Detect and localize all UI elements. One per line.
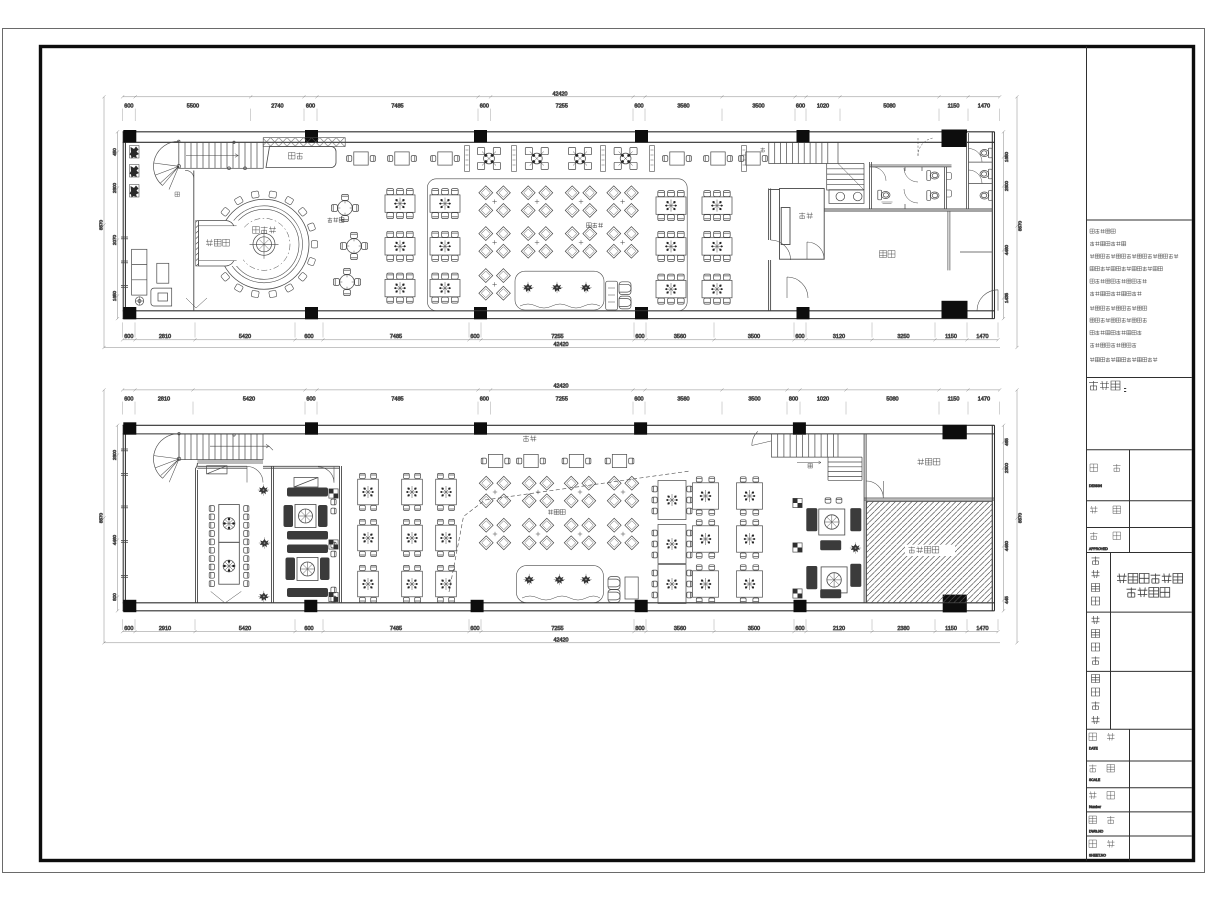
svg-text:DWG.NO: DWG.NO: [1089, 830, 1104, 834]
svg-text:3250: 3250: [897, 334, 909, 340]
svg-text:600: 600: [635, 334, 644, 340]
svg-text:2300: 2300: [1004, 462, 1009, 473]
svg-text:1150: 1150: [945, 334, 957, 340]
svg-text:3500: 3500: [748, 626, 760, 632]
svg-text:3500: 3500: [748, 334, 760, 340]
svg-text:1150: 1150: [948, 103, 960, 109]
svg-text:3560: 3560: [674, 334, 686, 340]
svg-text:5420: 5420: [239, 626, 251, 632]
svg-text:7485: 7485: [391, 397, 403, 403]
svg-text:1150: 1150: [945, 626, 957, 632]
svg-text:600: 600: [796, 103, 805, 109]
svg-text:600: 600: [480, 103, 489, 109]
svg-text:600: 600: [304, 626, 313, 632]
svg-text:2740: 2740: [271, 103, 283, 109]
svg-text:600: 600: [634, 103, 643, 109]
svg-text:600: 600: [634, 397, 643, 403]
svg-text:600: 600: [470, 626, 479, 632]
svg-text:2800: 2800: [112, 182, 117, 193]
svg-text:1650: 1650: [112, 290, 117, 301]
svg-text:7255: 7255: [551, 334, 563, 340]
svg-text:2810: 2810: [158, 397, 170, 403]
svg-text:450: 450: [112, 148, 117, 156]
svg-text:DATE: DATE: [1089, 747, 1099, 751]
svg-text:600: 600: [124, 626, 133, 632]
svg-text:5420: 5420: [243, 397, 255, 403]
svg-text:1470: 1470: [978, 397, 990, 403]
svg-text:600: 600: [304, 334, 313, 340]
svg-text:APPROVED: APPROVED: [1089, 547, 1108, 551]
svg-text:42420: 42420: [553, 91, 568, 97]
svg-text:5500: 5500: [187, 103, 199, 109]
svg-text:DESIGN: DESIGN: [1089, 484, 1103, 488]
svg-text:4460: 4460: [112, 534, 117, 545]
svg-text:600: 600: [795, 626, 804, 632]
svg-text:1650: 1650: [1004, 151, 1009, 162]
svg-text:445: 445: [1004, 596, 1009, 604]
svg-text:5080: 5080: [883, 103, 895, 109]
svg-text:2810: 2810: [159, 334, 171, 340]
svg-text:800: 800: [789, 397, 798, 403]
svg-text:7485: 7485: [390, 334, 402, 340]
svg-text:5080: 5080: [886, 397, 898, 403]
svg-text:600: 600: [470, 334, 479, 340]
svg-text:800: 800: [635, 626, 644, 632]
svg-text:2800: 2800: [1004, 180, 1009, 191]
svg-text:1470: 1470: [976, 334, 988, 340]
svg-text:8570: 8570: [99, 512, 104, 523]
svg-text:Number: Number: [1089, 805, 1102, 809]
svg-text:600: 600: [306, 397, 315, 403]
svg-text:8570: 8570: [99, 219, 104, 230]
svg-text:5420: 5420: [239, 334, 251, 340]
svg-text:2380: 2380: [897, 626, 909, 632]
svg-text:4460: 4460: [1004, 540, 1009, 551]
svg-text:3560: 3560: [677, 397, 689, 403]
svg-text:1470: 1470: [978, 103, 990, 109]
svg-text:1020: 1020: [817, 103, 829, 109]
svg-text:2800: 2800: [112, 449, 117, 460]
svg-text:2910: 2910: [159, 626, 171, 632]
svg-text:2120: 2120: [833, 626, 845, 632]
svg-text:8570: 8570: [1018, 512, 1023, 523]
svg-text:7255: 7255: [556, 397, 568, 403]
svg-text:7485: 7485: [390, 626, 402, 632]
svg-text:3500: 3500: [752, 103, 764, 109]
svg-text:600: 600: [124, 103, 133, 109]
svg-text:2070: 2070: [112, 234, 117, 245]
svg-text:1020: 1020: [817, 397, 829, 403]
svg-text:7255: 7255: [556, 103, 568, 109]
svg-text:SHEET.NO: SHEET.NO: [1089, 854, 1106, 858]
svg-text:600: 600: [124, 334, 133, 340]
svg-text:3560: 3560: [677, 103, 689, 109]
svg-text:3500: 3500: [748, 397, 760, 403]
svg-text:SCALE: SCALE: [1089, 778, 1101, 782]
svg-text:7255: 7255: [551, 626, 563, 632]
svg-text:600: 600: [124, 397, 133, 403]
svg-text:3120: 3120: [833, 334, 845, 340]
svg-text:8570: 8570: [1018, 220, 1023, 231]
svg-text:600: 600: [306, 103, 315, 109]
svg-text:1435: 1435: [1004, 292, 1009, 303]
svg-text:1470: 1470: [976, 626, 988, 632]
svg-text:600: 600: [480, 397, 489, 403]
svg-text:800: 800: [112, 593, 117, 601]
svg-text:1150: 1150: [948, 397, 960, 403]
svg-text:42420: 42420: [554, 384, 569, 390]
svg-text:7485: 7485: [391, 103, 403, 109]
svg-text:42420: 42420: [554, 638, 569, 644]
svg-text:4460: 4460: [1004, 244, 1009, 255]
svg-text:600: 600: [795, 334, 804, 340]
svg-text:42420: 42420: [554, 342, 569, 348]
svg-text:465: 465: [1004, 438, 1009, 446]
svg-text:3560: 3560: [674, 626, 686, 632]
